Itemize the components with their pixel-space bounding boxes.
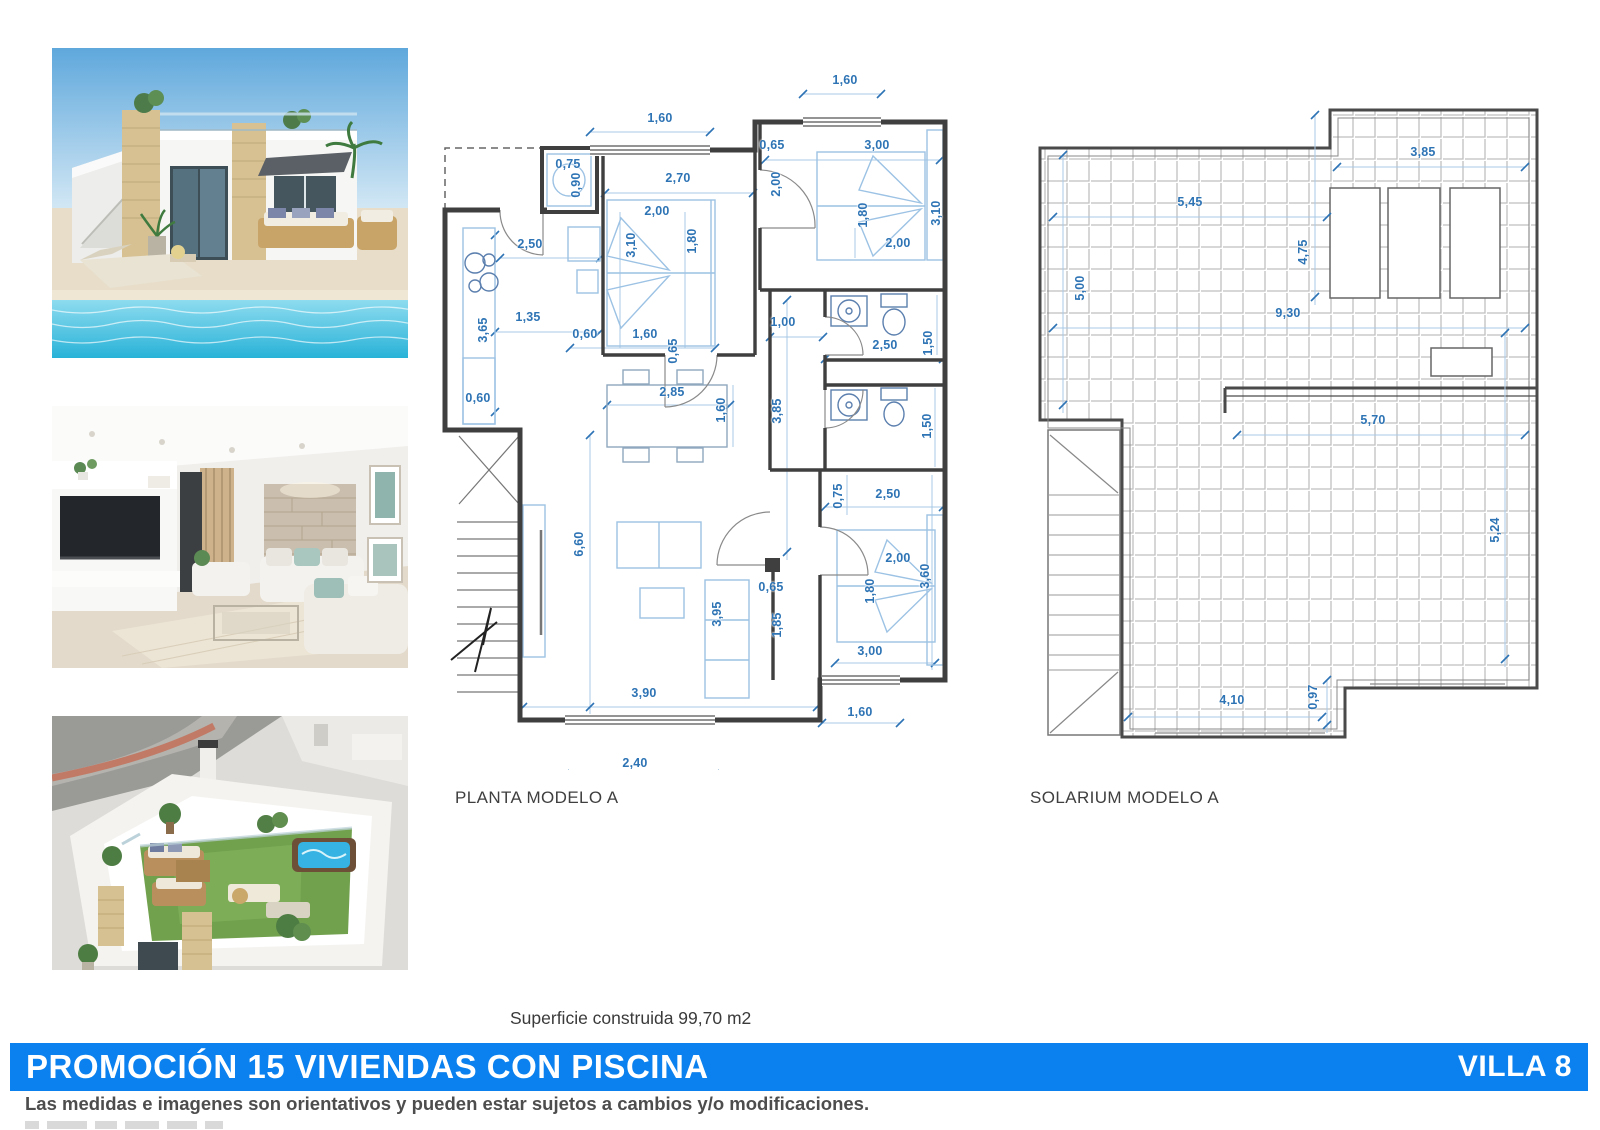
dimension-label: 3,60 bbox=[918, 563, 932, 588]
dimension-label: 1,85 bbox=[770, 612, 784, 637]
dimension-label: 2,00 bbox=[644, 204, 669, 218]
solarium-caption: SOLARIUM MODELO A bbox=[1030, 788, 1219, 808]
floorplan-solarium-drawing bbox=[1025, 95, 1545, 750]
promo-banner-title: PROMOCIÓN 15 VIVIENDAS CON PISCINA bbox=[26, 1048, 709, 1086]
dimension-label: 2,50 bbox=[517, 237, 542, 251]
dimension-label: 0,90 bbox=[569, 172, 583, 197]
stairs-arrow bbox=[451, 608, 497, 672]
dimension-label: 5,70 bbox=[1360, 413, 1385, 427]
dimension-label: 2,00 bbox=[885, 551, 910, 565]
dimension-label: 0,65 bbox=[666, 338, 680, 363]
floorplan-solarium: 3,855,455,004,759,305,705,244,100,97 bbox=[1025, 95, 1545, 750]
cutoff-text bbox=[25, 1121, 245, 1129]
dimension-label: 2,70 bbox=[665, 171, 690, 185]
villa-number-label: VILLA 8 bbox=[1458, 1050, 1572, 1084]
floorplan-planta: 1,601,600,750,902,700,653,002,002,003,10… bbox=[435, 60, 965, 770]
dimension-label: 3,85 bbox=[770, 398, 784, 423]
dimension-label: 0,60 bbox=[465, 391, 490, 405]
photo-villa-exterior-art bbox=[52, 48, 408, 358]
dimension-label: 5,24 bbox=[1488, 517, 1502, 542]
dimension-label: 2,50 bbox=[872, 338, 897, 352]
photo-rooftop-aerial bbox=[52, 716, 408, 970]
dimension-label: 1,00 bbox=[770, 315, 795, 329]
dimension-label: 5,00 bbox=[1073, 275, 1087, 300]
dimension-lines bbox=[495, 94, 943, 770]
dimension-label: 3,00 bbox=[857, 644, 882, 658]
dimension-label: 2,40 bbox=[622, 756, 647, 770]
porch-dashed bbox=[445, 148, 542, 210]
photo-villa-exterior bbox=[52, 48, 408, 358]
dimension-label: 0,60 bbox=[572, 327, 597, 341]
dimension-label: 3,95 bbox=[710, 601, 724, 626]
dimension-label: 2,50 bbox=[875, 487, 900, 501]
planta-caption: PLANTA MODELO A bbox=[455, 788, 618, 808]
furniture bbox=[463, 130, 943, 698]
dimension-label: 1,80 bbox=[856, 202, 870, 227]
door-arcs bbox=[500, 170, 868, 575]
dimension-label: 1,50 bbox=[920, 413, 934, 438]
dimension-label: 3,85 bbox=[1410, 145, 1435, 159]
dimension-label: 3,00 bbox=[864, 138, 889, 152]
dimension-label: 1,60 bbox=[832, 73, 857, 87]
dimension-label: 1,35 bbox=[515, 310, 540, 324]
brochure-page: 1,601,600,750,902,700,653,002,002,003,10… bbox=[0, 0, 1600, 1130]
dimension-label: 6,60 bbox=[572, 531, 586, 556]
dimension-label: 0,65 bbox=[759, 138, 784, 152]
floorplan-planta-drawing bbox=[435, 60, 965, 770]
photo-interior-living bbox=[52, 406, 408, 668]
dimension-label: 2,00 bbox=[769, 171, 783, 196]
dimension-label: 5,45 bbox=[1177, 195, 1202, 209]
dimension-label: 0,65 bbox=[758, 580, 783, 594]
dimension-label: 3,65 bbox=[476, 317, 490, 342]
fixtures bbox=[465, 253, 907, 426]
dimension-label: 1,80 bbox=[685, 228, 699, 253]
walls bbox=[445, 122, 945, 720]
disclaimer-text: Las medidas e imagenes son orientativos … bbox=[25, 1093, 869, 1115]
dimension-label: 1,60 bbox=[847, 705, 872, 719]
dimension-label: 3,90 bbox=[631, 686, 656, 700]
promo-banner: PROMOCIÓN 15 VIVIENDAS CON PISCINA VILLA… bbox=[10, 1043, 1588, 1091]
solarium-stairs bbox=[1048, 430, 1120, 735]
photo-interior-art bbox=[52, 406, 408, 668]
dimension-label: 0,75 bbox=[555, 157, 580, 171]
dimension-label: 4,75 bbox=[1296, 239, 1310, 264]
dimension-label: 1,60 bbox=[632, 327, 657, 341]
dimension-label: 1,60 bbox=[647, 111, 672, 125]
dimension-label: 0,75 bbox=[831, 483, 845, 508]
dimension-label: 1,50 bbox=[921, 330, 935, 355]
dimension-label: 2,00 bbox=[885, 236, 910, 250]
stairs bbox=[457, 436, 520, 692]
dimension-label: 4,10 bbox=[1219, 693, 1244, 707]
dimension-label: 0,97 bbox=[1306, 684, 1320, 709]
dimension-label: 3,10 bbox=[624, 232, 638, 257]
dimension-label: 2,85 bbox=[659, 385, 684, 399]
dimension-label: 9,30 bbox=[1275, 306, 1300, 320]
dimension-label: 1,80 bbox=[863, 578, 877, 603]
dimension-label: 1,60 bbox=[714, 397, 728, 422]
dimension-label: 3,10 bbox=[929, 200, 943, 225]
built-area-note: Superficie construida 99,70 m2 bbox=[510, 1008, 751, 1029]
photo-rooftop-art bbox=[52, 716, 408, 970]
